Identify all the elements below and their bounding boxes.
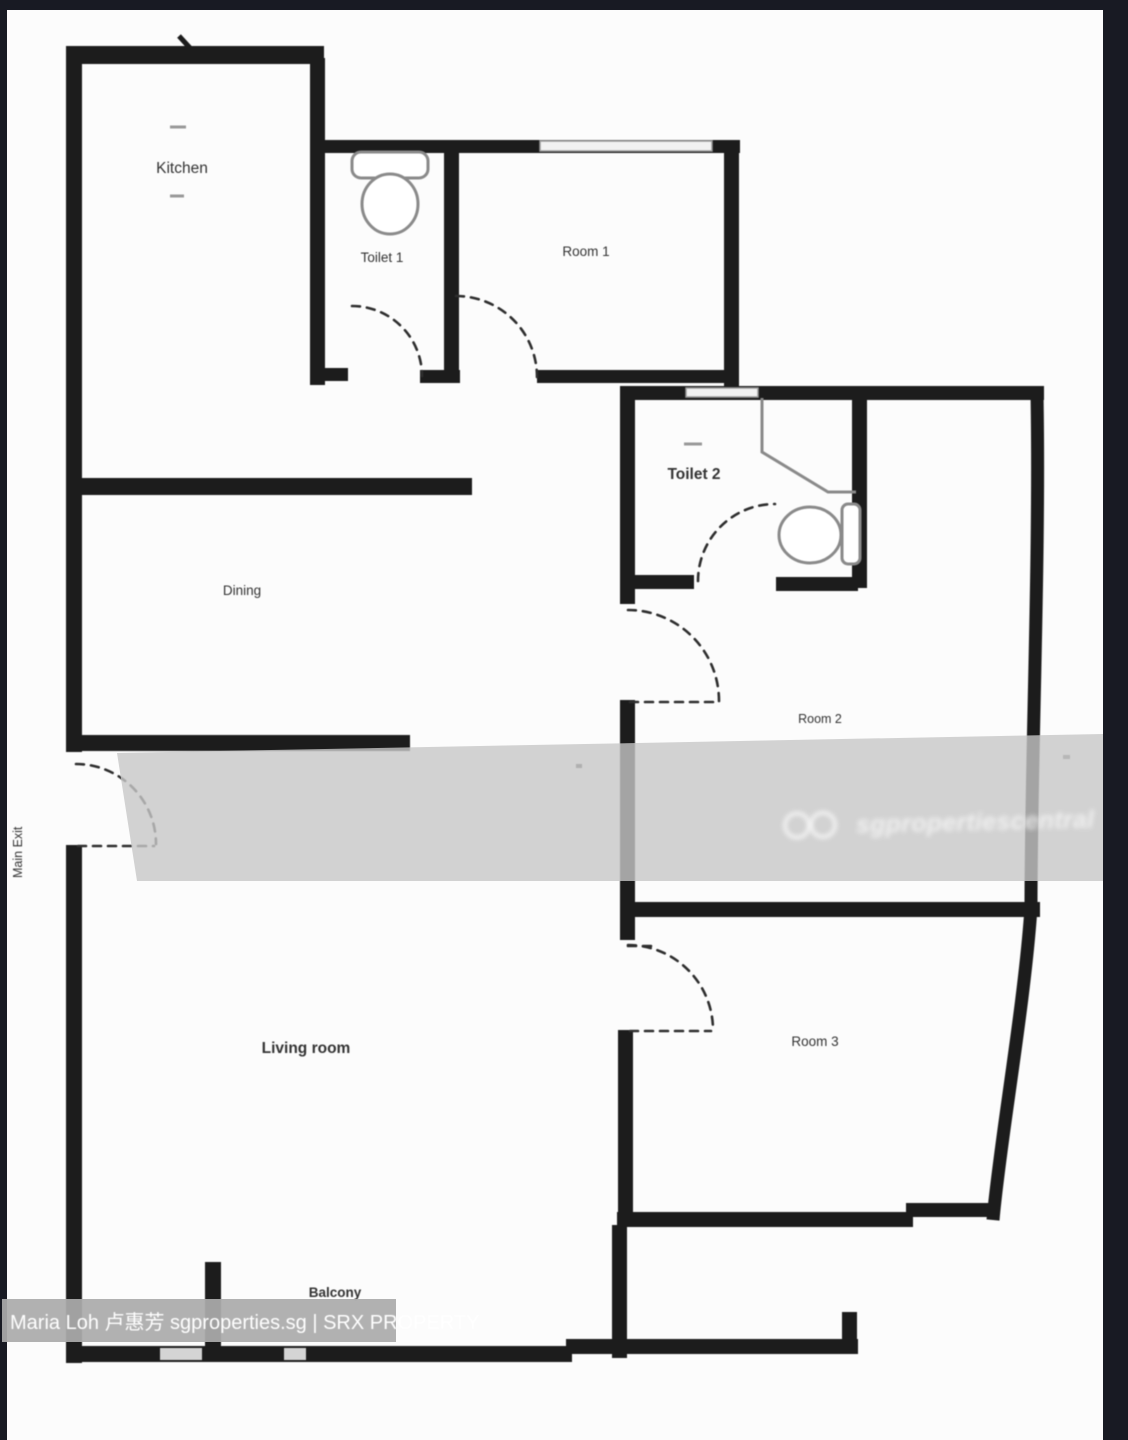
wall-room1-divider [444,140,459,372]
wall-balcony-end-nub [842,1312,857,1346]
label-toilet1: Toilet 1 [361,250,404,265]
wall-kitchen-right [310,58,325,385]
label-living-room: Living room [262,1040,351,1057]
wall-kitchen-top [66,46,324,64]
label-room1: Room 1 [562,244,609,259]
wall-room3-bottom-step [906,1203,998,1217]
wall-room3-bottom [617,1212,913,1227]
wall-room1-right [724,146,739,386]
watermark-text: sgpropertiescentral [856,806,1096,839]
label-room3: Room 3 [791,1034,838,1049]
label-balcony: Balcony [309,1285,362,1300]
wall-toilet1-bottom-right [420,370,460,383]
wall-balcony-right [612,1225,627,1358]
wall-balcony-bottom-left [80,1346,572,1362]
label-room2: Room 2 [798,712,842,726]
wall-toilet2-bottom-right [776,577,858,591]
label-kitchen: Kitchen [156,160,208,177]
balcony-wall-notch [284,1348,306,1360]
wall-room1-bottom [537,370,727,383]
floor-plan-screenshot: Kitchen Toilet 1 Room 1 Toilet 2 Dining … [0,0,1128,1440]
wall-left-lower [66,845,82,1363]
plan-paper [7,10,1103,1440]
floor-plan: Kitchen Toilet 1 Room 1 Toilet 2 Dining … [0,0,1128,1440]
wall-room2-top [620,386,1044,400]
wall-left-upper [66,46,82,752]
balcony-wall-notch [160,1348,202,1360]
wall-room3-left [618,1030,633,1225]
toilet2-bowl-icon [779,507,841,563]
wall-balcony-bottom-right [566,1339,858,1354]
wall-toilet2-bottom-left [628,575,694,589]
wall-room2-bottom [630,902,1040,917]
toilet2-cistern-icon [842,504,860,564]
watermark-band: sgpropertiescentral [117,734,1103,881]
caption-text: Maria Loh 卢惠芳 sgproperties.sg | SRX PROP… [10,1311,479,1334]
wall-toilet1-bottom-left [316,368,348,381]
window-toilet2 [686,388,758,397]
wall-room2-left-upper [620,396,635,604]
toilet1-bowl-icon [362,174,418,234]
window-room1 [540,141,712,151]
wall-dining-top [70,478,472,495]
label-toilet2: Toilet 2 [667,466,720,483]
watermark-band-bg [117,734,1103,881]
label-dining: Dining [223,583,261,598]
label-main-exit: Main Exit [11,826,25,878]
